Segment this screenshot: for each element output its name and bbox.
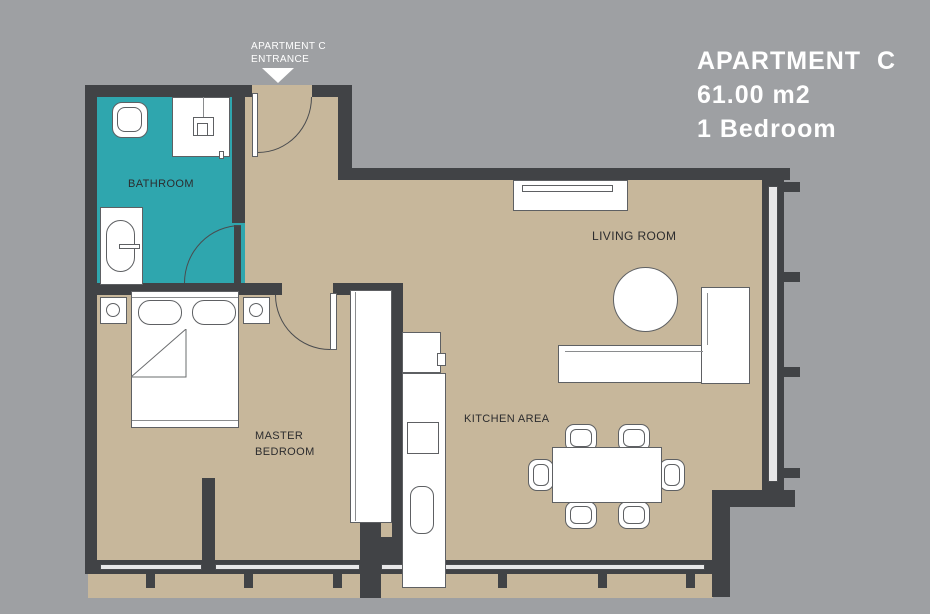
pillow [138,300,182,325]
wall-top-living [338,168,790,180]
entrance-arrow-icon [262,68,294,83]
chair-cushion [533,464,549,486]
entrance-label: APARTMENT C ENTRANCE [251,40,326,66]
window-right-wall [768,186,778,482]
facade-tick [784,468,800,478]
bed-blanket-fold [131,329,187,378]
kitchen-counter [402,373,446,588]
bed-footboard-line [132,420,238,421]
toilet [112,102,148,138]
sofa-seat-line [565,351,703,352]
facade-tick [784,182,800,192]
dining-chair [618,501,650,529]
lamp [249,303,263,317]
shower-knob [219,151,224,159]
sofa-corner [703,347,748,381]
pillow [192,300,236,325]
wall-left [85,85,97,574]
chair-cushion [664,464,680,486]
facade-tick [784,272,800,282]
toilet-seat [117,107,142,132]
stove [407,422,439,454]
bed-headboard-line [132,297,238,298]
floor-plan: BATHROOM MASTER BEDROOM LIVING ROOM KITC… [0,0,930,614]
dining-chair [528,459,554,491]
window-bottom-1 [100,564,202,570]
dining-chair [659,459,685,491]
washbasin-tap [119,244,140,249]
wall-top-left [88,85,252,97]
nightstand-left [100,297,127,324]
wall-step [338,85,352,180]
balcony-post [244,574,253,588]
dining-table [552,447,662,503]
coffee-table [613,267,678,332]
balcony-post [598,574,607,588]
chair-cushion [623,506,645,524]
wardrobe [350,290,392,523]
lamp [106,303,120,317]
master-bedroom-label: MASTER BEDROOM [255,428,315,460]
wall-corner-vertical [712,490,730,597]
apartment-bedrooms: 1 Bedroom [697,112,896,146]
balcony-post [686,574,695,588]
fridge [402,332,441,373]
title-block: APARTMENT C 61.00 m2 1 Bedroom [697,44,896,146]
shower-head-inner [197,123,208,136]
chair-cushion [570,429,592,447]
kitchen-area-label: KITCHEN AREA [464,411,550,427]
balcony-post [333,574,342,588]
wardrobe-door-line [355,292,356,521]
nightstand-right [243,297,270,324]
fridge-handle [437,353,446,366]
bedroom-door-opening [282,283,333,295]
chair-cushion [570,506,592,524]
dining-chair [565,501,597,529]
wall-bathroom-right [232,85,245,223]
shower-pipe [203,97,204,118]
living-room-label: LIVING ROOM [592,228,676,244]
apartment-area: 61.00 m2 [697,78,896,112]
bedroom-door-leaf [330,293,337,350]
window-bottom-2 [215,564,360,570]
sofa-seat-line [707,293,708,345]
balcony-post [498,574,507,588]
bathroom-label: BATHROOM [128,176,194,192]
entrance-opening [252,85,312,97]
balcony-post [146,574,155,588]
apartment-name: APARTMENT C [697,44,896,78]
facade-tick [784,367,800,377]
kitchen-sink [410,486,434,534]
wall-bedroom-stub [202,478,215,574]
balcony-floor [88,572,713,598]
tv [522,185,613,192]
chair-cushion [623,429,645,447]
